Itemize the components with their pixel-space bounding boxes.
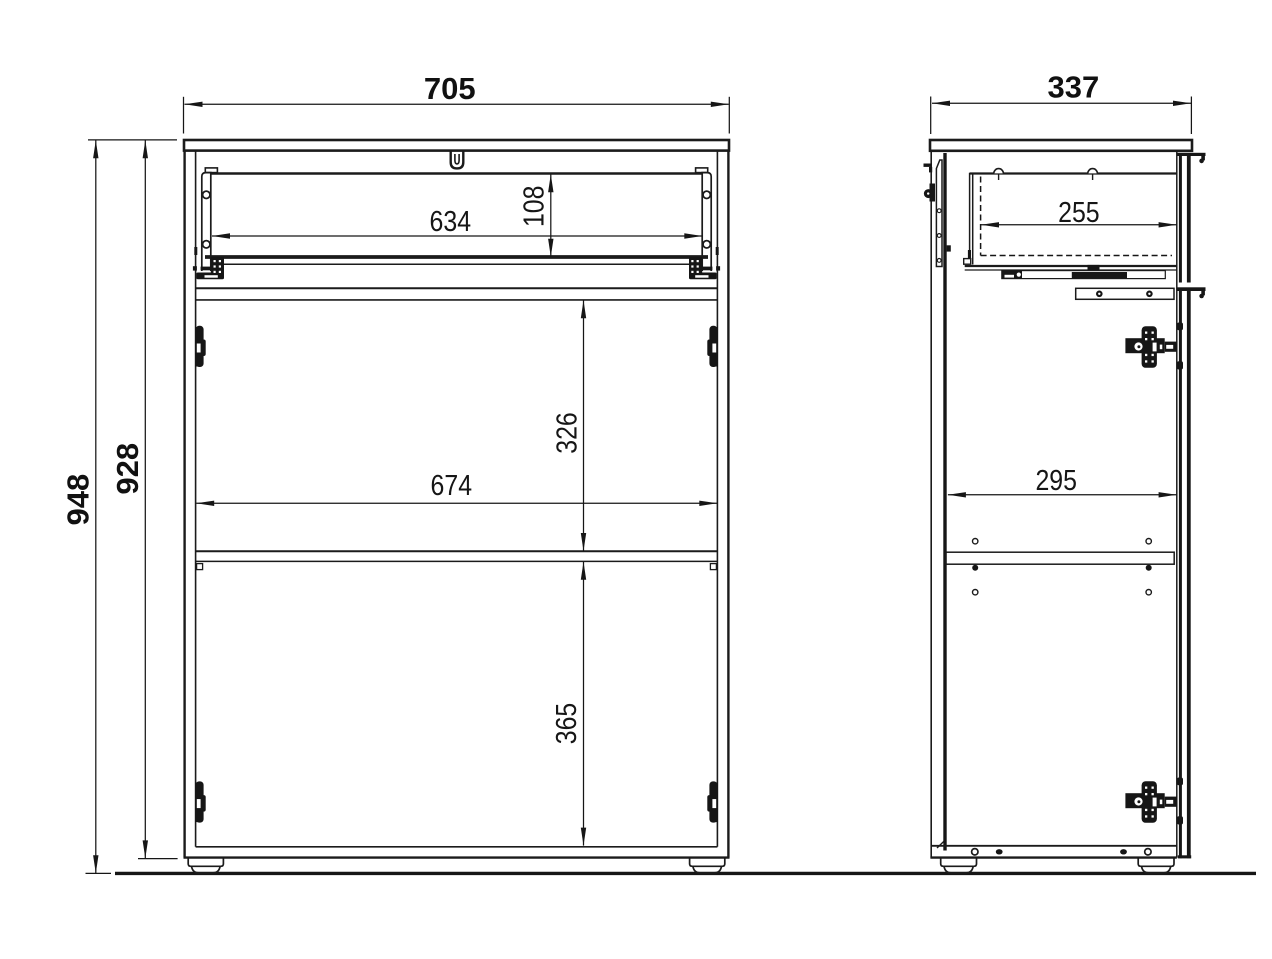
- svg-text:295: 295: [1035, 465, 1077, 497]
- svg-text:108: 108: [519, 186, 551, 228]
- svg-text:674: 674: [431, 470, 473, 502]
- svg-text:365: 365: [551, 703, 583, 745]
- svg-text:634: 634: [430, 206, 472, 238]
- svg-text:928: 928: [110, 443, 145, 495]
- svg-text:326: 326: [552, 412, 584, 454]
- svg-text:948: 948: [60, 474, 95, 526]
- svg-text:255: 255: [1058, 197, 1100, 229]
- svg-text:337: 337: [1048, 69, 1100, 104]
- svg-text:705: 705: [424, 71, 476, 106]
